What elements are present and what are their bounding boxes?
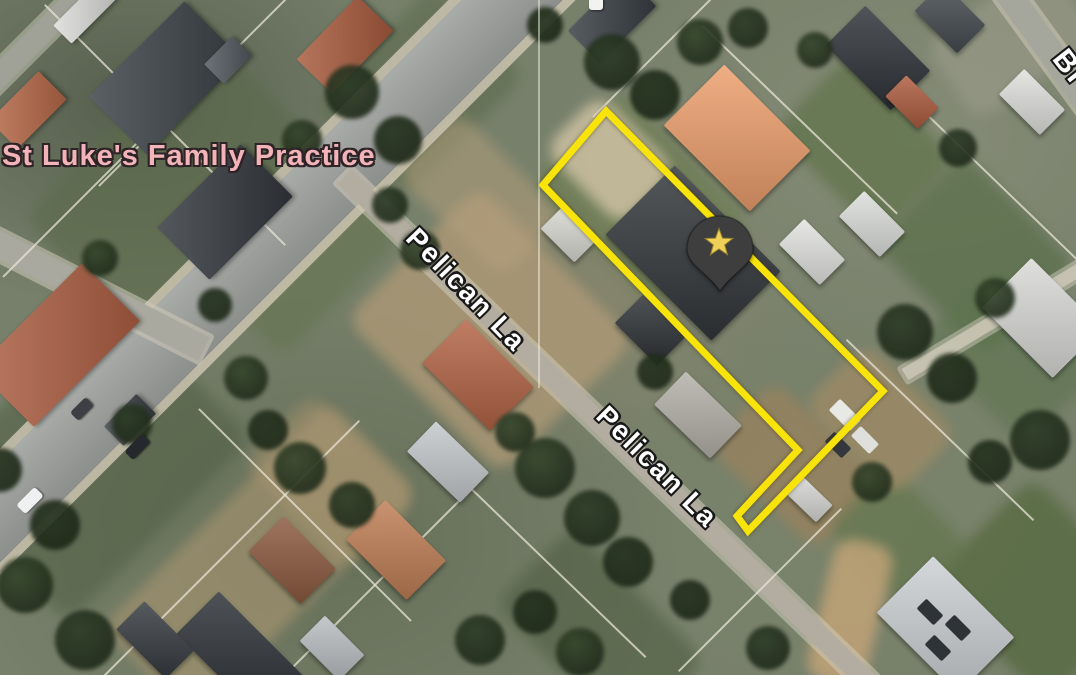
tree: [584, 34, 640, 90]
tree: [670, 580, 710, 620]
tree: [274, 442, 326, 494]
utility-line: [538, 0, 540, 388]
tree: [637, 354, 673, 390]
tree: [603, 537, 653, 587]
tree: [975, 278, 1015, 318]
tree: [746, 626, 790, 670]
tree: [325, 65, 379, 119]
place-label[interactable]: St Luke's Family Practice: [2, 140, 376, 173]
tree: [372, 187, 408, 223]
tree: [82, 240, 118, 276]
tree: [968, 440, 1012, 484]
tree: [455, 615, 505, 665]
tree: [797, 32, 833, 68]
tree: [329, 482, 375, 528]
tree: [630, 70, 680, 120]
map-dot: [589, 0, 603, 10]
tree: [527, 7, 563, 43]
tree: [248, 410, 288, 450]
tree: [0, 557, 53, 613]
tree: [939, 129, 977, 167]
tree: [677, 19, 723, 65]
tree: [556, 628, 604, 675]
house-roof: [0, 71, 67, 149]
tree: [198, 288, 232, 322]
tree: [374, 116, 422, 164]
house-roof: [779, 219, 845, 285]
tree: [877, 304, 933, 360]
tree: [30, 500, 80, 550]
tree: [728, 8, 768, 48]
tree: [564, 490, 620, 546]
satellite-map[interactable]: St Luke's Family Practice Pelican La Pel…: [0, 0, 1076, 675]
tree: [852, 462, 892, 502]
tree: [495, 412, 535, 452]
tree: [224, 356, 268, 400]
tree: [55, 610, 115, 670]
tree: [1010, 410, 1070, 470]
tree: [513, 590, 557, 634]
house-roof: [299, 615, 364, 675]
tree: [927, 353, 977, 403]
